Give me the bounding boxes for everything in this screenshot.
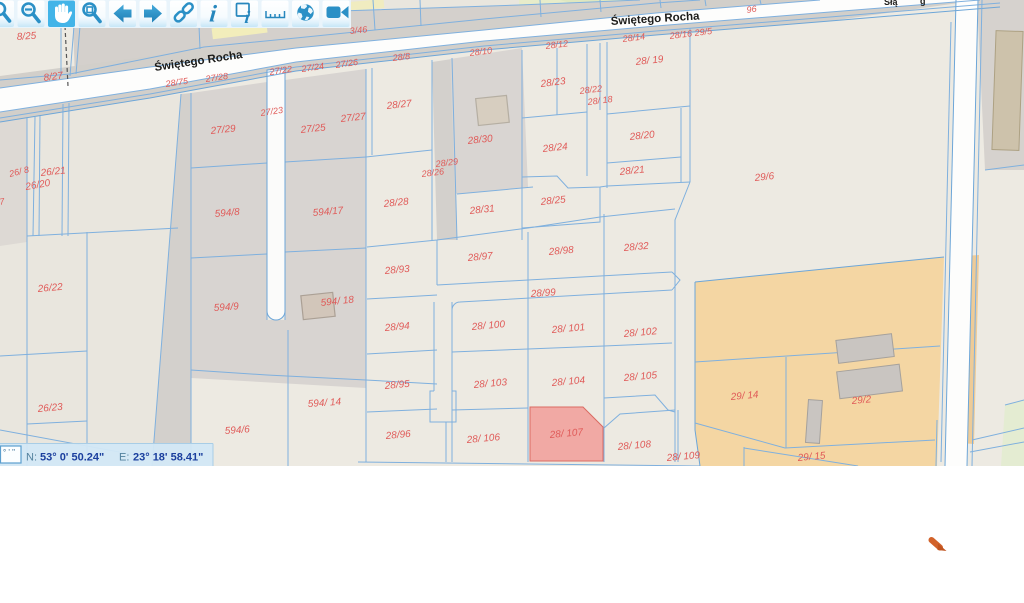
svg-text:28/97: 28/97 xyxy=(466,251,493,264)
svg-text:28/99: 28/99 xyxy=(529,287,556,300)
svg-text:594/6: 594/6 xyxy=(224,424,250,437)
svg-text:28/95: 28/95 xyxy=(383,379,410,392)
svg-text:8/25: 8/25 xyxy=(16,31,37,43)
svg-text:29/2: 29/2 xyxy=(850,394,872,407)
svg-text:29/6: 29/6 xyxy=(753,171,775,184)
svg-text:28/96: 28/96 xyxy=(384,429,411,442)
svg-text:594/ 14: 594/ 14 xyxy=(307,397,341,410)
svg-text:° ' ": ° ' " xyxy=(3,448,15,457)
svg-text:3/46: 3/46 xyxy=(349,24,367,36)
svg-text:26/23: 26/23 xyxy=(36,402,63,415)
svg-text:26/22: 26/22 xyxy=(36,282,63,295)
svg-text:g: g xyxy=(920,0,926,6)
svg-text:594/8: 594/8 xyxy=(214,207,240,220)
svg-text:N:: N: xyxy=(26,452,37,464)
svg-text:53° 0' 50.24": 53° 0' 50.24" xyxy=(40,452,104,464)
svg-text:E:: E: xyxy=(119,452,129,464)
svg-text:Słą: Słą xyxy=(884,0,899,7)
svg-text:28/93: 28/93 xyxy=(383,264,410,277)
svg-text:23° 18' 58.41": 23° 18' 58.41" xyxy=(133,452,203,464)
svg-text:28/32: 28/32 xyxy=(622,241,649,254)
svg-text:96: 96 xyxy=(746,4,757,15)
svg-text:28/94: 28/94 xyxy=(383,321,410,334)
svg-text:594/9: 594/9 xyxy=(213,301,239,314)
svg-text:28/98: 28/98 xyxy=(547,245,574,258)
